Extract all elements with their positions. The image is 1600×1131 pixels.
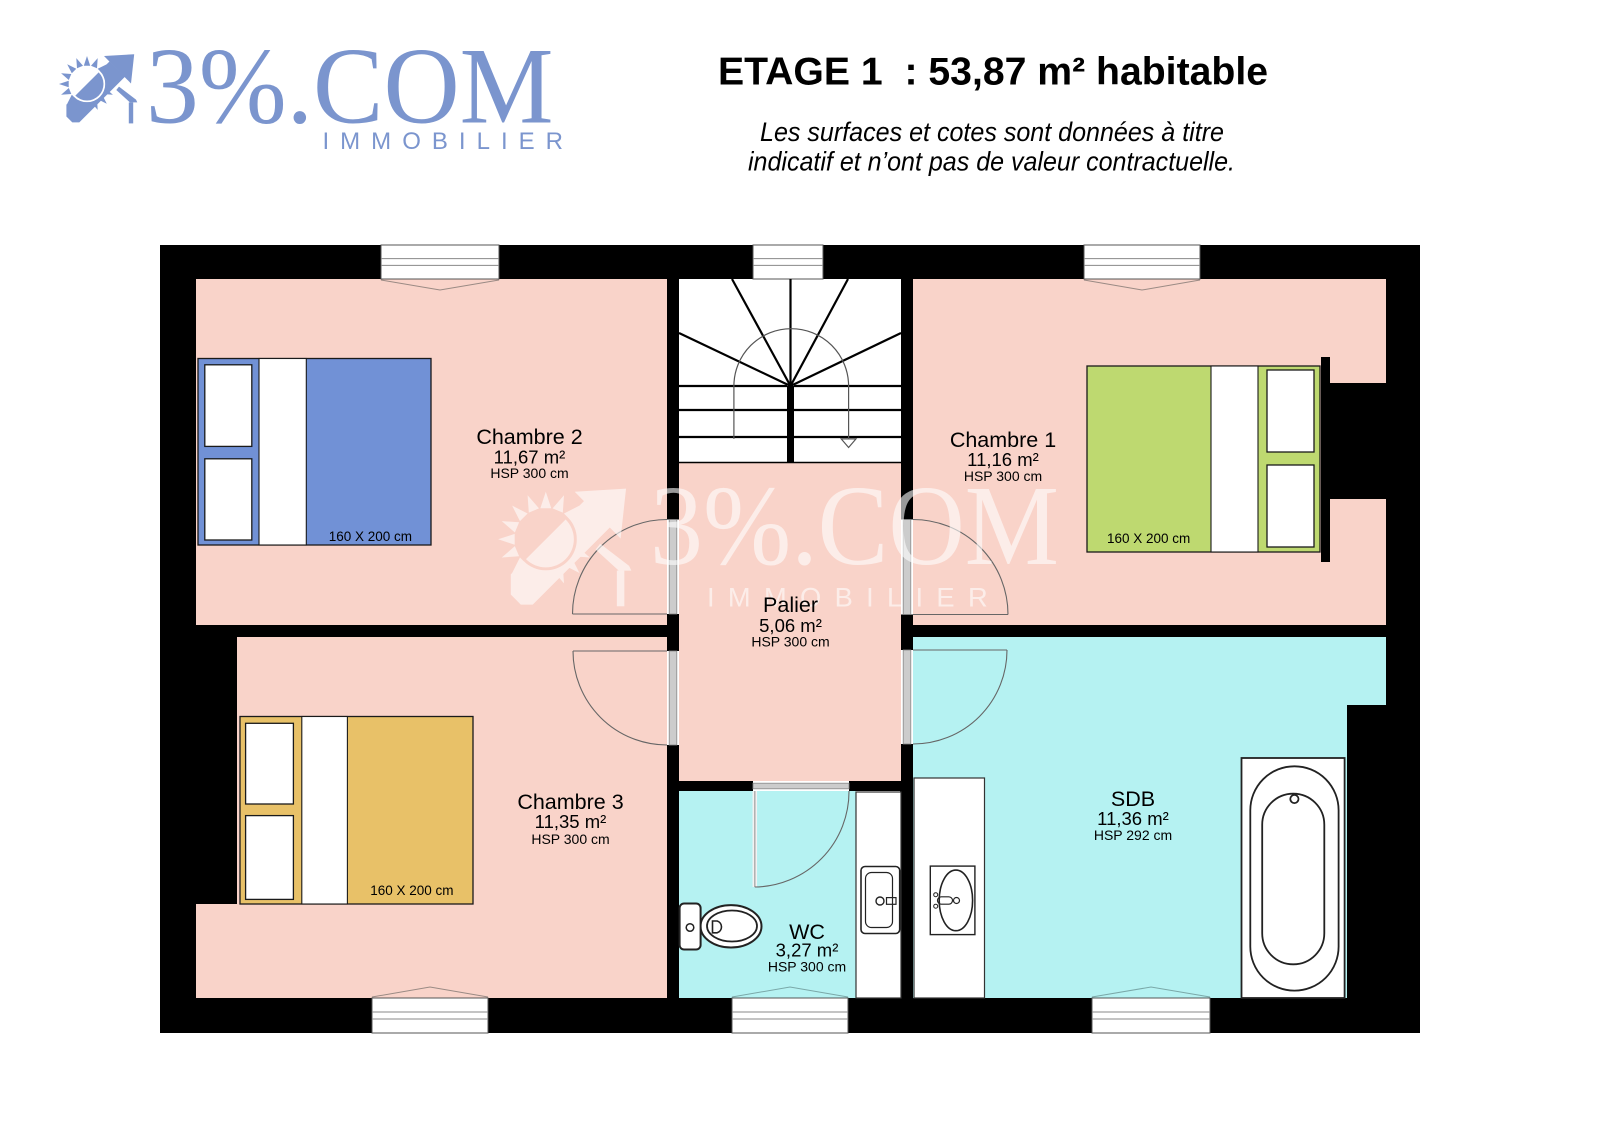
svg-text:Chambre 2: Chambre 2	[476, 425, 582, 449]
svg-text:HSP 300 cm: HSP 300 cm	[768, 959, 846, 975]
svg-text:11,16 m²: 11,16 m²	[967, 449, 1039, 470]
svg-text:HSP 300 cm: HSP 300 cm	[490, 465, 568, 481]
svg-text:HSP 292 cm: HSP 292 cm	[1094, 827, 1172, 843]
svg-text:HSP 300 cm: HSP 300 cm	[964, 468, 1042, 484]
svg-text:3,27 m²: 3,27 m²	[776, 940, 839, 961]
svg-text:ETAGE 1 : 53,87 m² habitable: ETAGE 1 : 53,87 m² habitable	[718, 51, 1268, 94]
svg-text:160 X 200 cm: 160 X 200 cm	[1107, 531, 1190, 546]
svg-text:160 X 200 cm: 160 X 200 cm	[329, 529, 412, 544]
svg-text:Les surfaces et cotes sont don: Les surfaces et cotes sont données à tit…	[760, 117, 1224, 147]
svg-text:IMMOBILIER: IMMOBILIER	[323, 128, 575, 155]
svg-text:11,36 m²: 11,36 m²	[1097, 808, 1169, 829]
svg-text:11,35 m²: 11,35 m²	[535, 811, 607, 832]
svg-text:indicatif et n’ont pas de vale: indicatif et n’ont pas de valeur contrac…	[748, 147, 1235, 177]
svg-text:160 X 200 cm: 160 X 200 cm	[370, 883, 453, 898]
svg-text:Palier: Palier	[763, 593, 818, 617]
svg-text:IMMOBILIER: IMMOBILIER	[707, 583, 1001, 613]
svg-text:HSP 300 cm: HSP 300 cm	[531, 831, 609, 847]
svg-text:HSP 300 cm: HSP 300 cm	[751, 634, 829, 650]
